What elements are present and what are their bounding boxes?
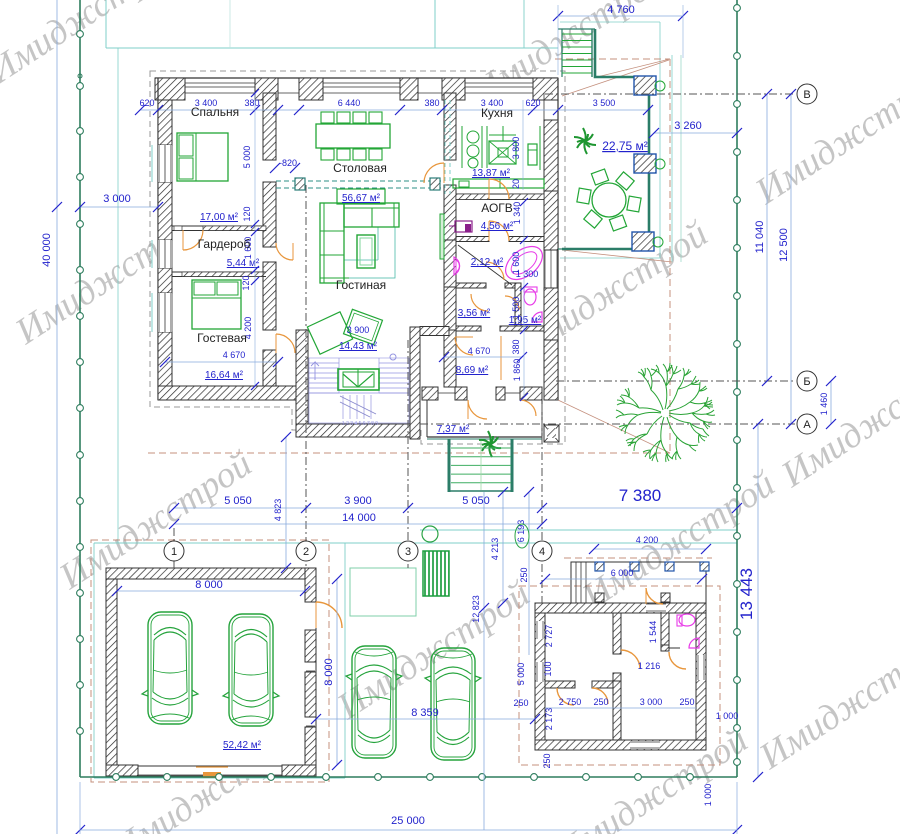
svg-text:Столовая: Столовая <box>333 161 387 175</box>
svg-text:4 670: 4 670 <box>468 346 491 356</box>
svg-text:7 380: 7 380 <box>619 486 662 505</box>
svg-text:2,12 м²: 2,12 м² <box>471 257 504 268</box>
svg-text:13,87 м²: 13,87 м² <box>472 168 511 179</box>
svg-text:Гостиная: Гостиная <box>336 278 386 292</box>
svg-text:3 500: 3 500 <box>593 98 616 108</box>
svg-text:1 2 3 4 5 6 7 8 9: 1 2 3 4 5 6 7 8 9 <box>342 421 378 427</box>
svg-text:6 000: 6 000 <box>611 568 634 578</box>
svg-text:12 500: 12 500 <box>778 228 790 262</box>
svg-text:5 000: 5 000 <box>516 663 526 686</box>
svg-text:2 750: 2 750 <box>559 697 582 707</box>
svg-text:А: А <box>803 419 811 431</box>
svg-text:25 000: 25 000 <box>391 815 425 827</box>
svg-text:13 443: 13 443 <box>737 568 756 620</box>
svg-text:3 000: 3 000 <box>640 697 663 707</box>
svg-text:В: В <box>803 89 810 101</box>
svg-text:20: 20 <box>511 179 521 189</box>
svg-text:1 216: 1 216 <box>638 661 661 671</box>
svg-text:2 727: 2 727 <box>544 625 554 648</box>
svg-text:52,42 м²: 52,42 м² <box>223 740 262 751</box>
svg-text:40 000: 40 000 <box>41 233 53 267</box>
svg-text:250: 250 <box>593 697 608 707</box>
svg-text:12 823: 12 823 <box>471 595 481 623</box>
svg-text:380: 380 <box>511 339 521 354</box>
svg-text:Спальня: Спальня <box>191 105 239 119</box>
svg-text:250: 250 <box>679 697 694 707</box>
svg-text:11 040: 11 040 <box>754 221 766 254</box>
svg-text:120: 120 <box>241 275 251 290</box>
svg-text:16,64 м²: 16,64 м² <box>205 370 244 381</box>
svg-text:8,69 м²: 8,69 м² <box>456 365 489 376</box>
svg-text:3: 3 <box>405 546 411 558</box>
svg-text:3 900: 3 900 <box>344 495 372 507</box>
svg-text:100: 100 <box>543 661 553 676</box>
svg-text:5 050: 5 050 <box>224 495 252 507</box>
svg-text:7,37 м²: 7,37 м² <box>437 424 470 435</box>
svg-text:5 000: 5 000 <box>242 146 252 169</box>
svg-text:5 050: 5 050 <box>462 495 490 507</box>
svg-text:250: 250 <box>519 567 529 582</box>
svg-text:3 900: 3 900 <box>347 325 370 335</box>
svg-text:АОГВ: АОГВ <box>481 201 513 215</box>
svg-text:250: 250 <box>542 753 552 768</box>
svg-text:620: 620 <box>139 98 154 108</box>
svg-text:8 000: 8 000 <box>195 579 223 591</box>
svg-text:22,75 м²: 22,75 м² <box>602 139 648 153</box>
svg-text:Гардероб: Гардероб <box>198 237 251 251</box>
svg-text:8 000: 8 000 <box>323 658 335 686</box>
svg-text:620: 620 <box>525 98 540 108</box>
svg-text:6 193: 6 193 <box>516 520 526 543</box>
svg-text:3 800: 3 800 <box>511 137 521 160</box>
svg-text:1 460: 1 460 <box>819 393 829 416</box>
svg-text:4 823: 4 823 <box>273 499 283 522</box>
svg-text:14,43 м²: 14,43 м² <box>339 341 378 352</box>
svg-text:8 359: 8 359 <box>411 707 439 719</box>
svg-text:4,56 м²: 4,56 м² <box>481 221 514 232</box>
svg-text:Гостевая: Гостевая <box>197 331 247 345</box>
svg-text:380: 380 <box>424 98 439 108</box>
svg-text:4 200: 4 200 <box>636 535 659 545</box>
svg-text:1 000: 1 000 <box>716 711 739 721</box>
svg-text:4 760: 4 760 <box>607 4 635 16</box>
svg-text:1 544: 1 544 <box>648 621 658 644</box>
svg-text:4: 4 <box>539 546 545 558</box>
svg-text:Б: Б <box>803 376 810 388</box>
svg-text:1,95 м²: 1,95 м² <box>509 315 542 326</box>
svg-text:-820: -820 <box>279 158 297 168</box>
svg-text:3 000: 3 000 <box>103 193 131 205</box>
svg-text:3 260: 3 260 <box>674 120 702 132</box>
svg-text:120: 120 <box>242 206 252 221</box>
svg-text:380: 380 <box>244 98 259 108</box>
svg-text:2 173: 2 173 <box>544 708 554 731</box>
svg-text:1 860: 1 860 <box>512 359 522 382</box>
svg-text:4 213: 4 213 <box>490 538 500 561</box>
svg-text:14 000: 14 000 <box>342 512 376 524</box>
svg-text:17,00 м²: 17,00 м² <box>200 212 239 223</box>
svg-text:2: 2 <box>303 546 309 558</box>
svg-text:6 440: 6 440 <box>338 98 361 108</box>
svg-text:Кухня: Кухня <box>481 106 513 120</box>
svg-text:250: 250 <box>513 698 528 708</box>
svg-text:1: 1 <box>171 546 177 558</box>
svg-text:1 000: 1 000 <box>703 784 713 807</box>
svg-text:56,67 м²: 56,67 м² <box>342 193 381 204</box>
svg-text:4 670: 4 670 <box>223 350 246 360</box>
svg-text:3,56 м²: 3,56 м² <box>458 308 491 319</box>
svg-text:1 300: 1 300 <box>516 269 539 279</box>
